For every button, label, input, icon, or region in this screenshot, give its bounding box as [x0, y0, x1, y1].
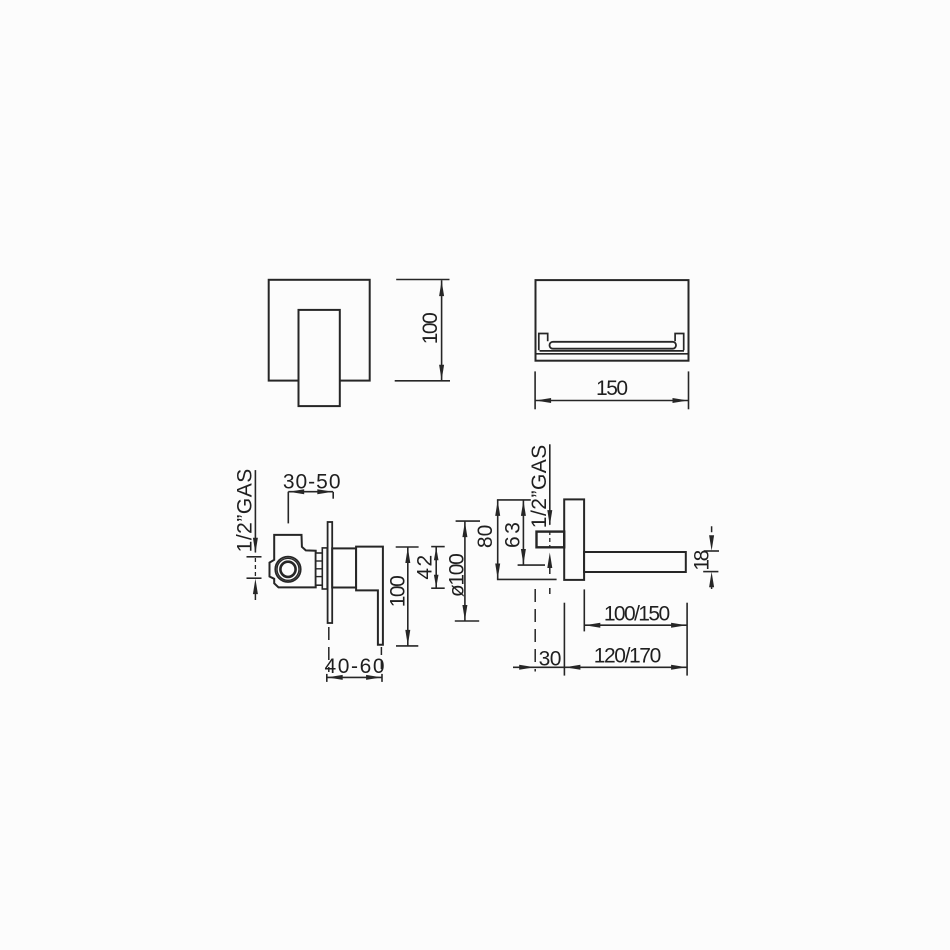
svg-text:63: 63	[502, 520, 525, 548]
svg-text:1/2”GAS: 1/2”GAS	[528, 444, 551, 528]
svg-text:100: 100	[387, 576, 410, 607]
svg-text:30-50: 30-50	[283, 470, 342, 493]
svg-text:18: 18	[690, 550, 713, 570]
svg-text:42: 42	[413, 553, 436, 579]
svg-text:150: 150	[596, 377, 627, 400]
svg-text:80: 80	[474, 525, 497, 548]
svg-text:120/170: 120/170	[594, 644, 661, 667]
svg-text:100/150: 100/150	[604, 602, 670, 625]
svg-text:1/2”GAS: 1/2”GAS	[234, 468, 257, 552]
svg-text:100: 100	[419, 313, 442, 344]
svg-text:ø100: ø100	[446, 554, 469, 597]
svg-text:40-60: 40-60	[324, 655, 386, 678]
